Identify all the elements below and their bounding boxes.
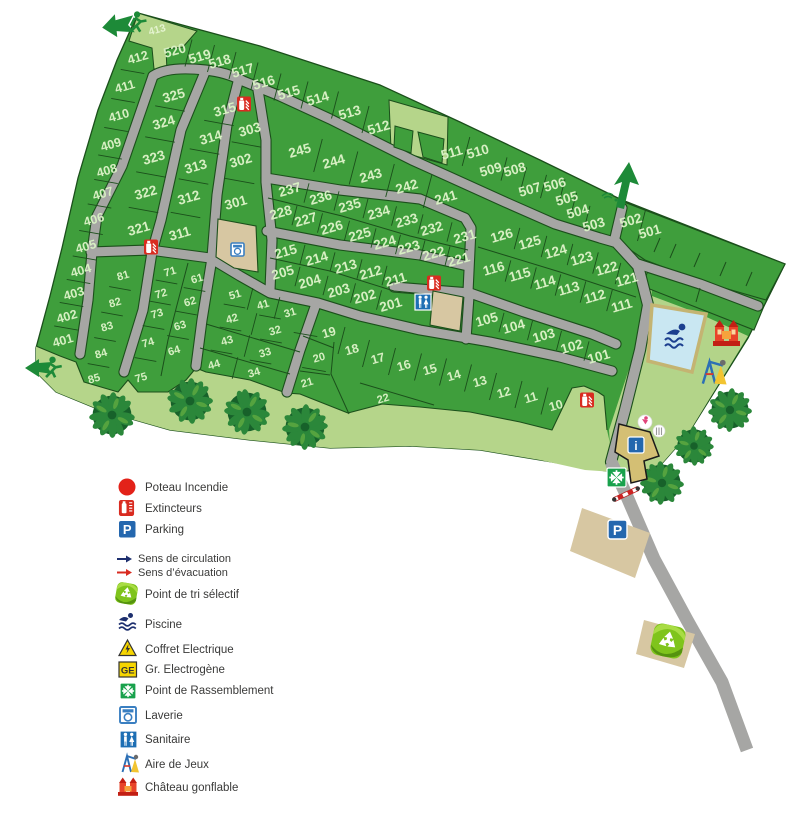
svg-text:Parking: Parking [145, 524, 184, 536]
svg-text:P: P [123, 522, 132, 537]
svg-text:Piscine: Piscine [145, 619, 182, 631]
svg-text:Sens d’évacuation: Sens d’évacuation [138, 567, 228, 579]
svg-text:Coffret Electrique: Coffret Electrique [145, 644, 234, 656]
svg-text:Point de tri sélectif: Point de tri sélectif [145, 589, 240, 601]
svg-text:Poteau Incendie: Poteau Incendie [145, 482, 228, 494]
svg-text:Aire de Jeux: Aire de Jeux [145, 759, 209, 771]
svg-text:i: i [634, 441, 637, 453]
svg-text:Laverie: Laverie [145, 710, 183, 722]
svg-text:Point de Rassemblement: Point de Rassemblement [145, 685, 274, 697]
svg-text:GE: GE [121, 666, 135, 677]
svg-text:Extincteurs: Extincteurs [145, 503, 202, 515]
svg-text:Sens de circulation: Sens de circulation [138, 553, 231, 565]
svg-text:Sanitaire: Sanitaire [145, 734, 190, 746]
svg-text:P: P [613, 522, 622, 538]
svg-text:Château gonflable: Château gonflable [145, 782, 238, 794]
svg-text:Gr. Electrogène: Gr. Electrogène [145, 664, 225, 676]
